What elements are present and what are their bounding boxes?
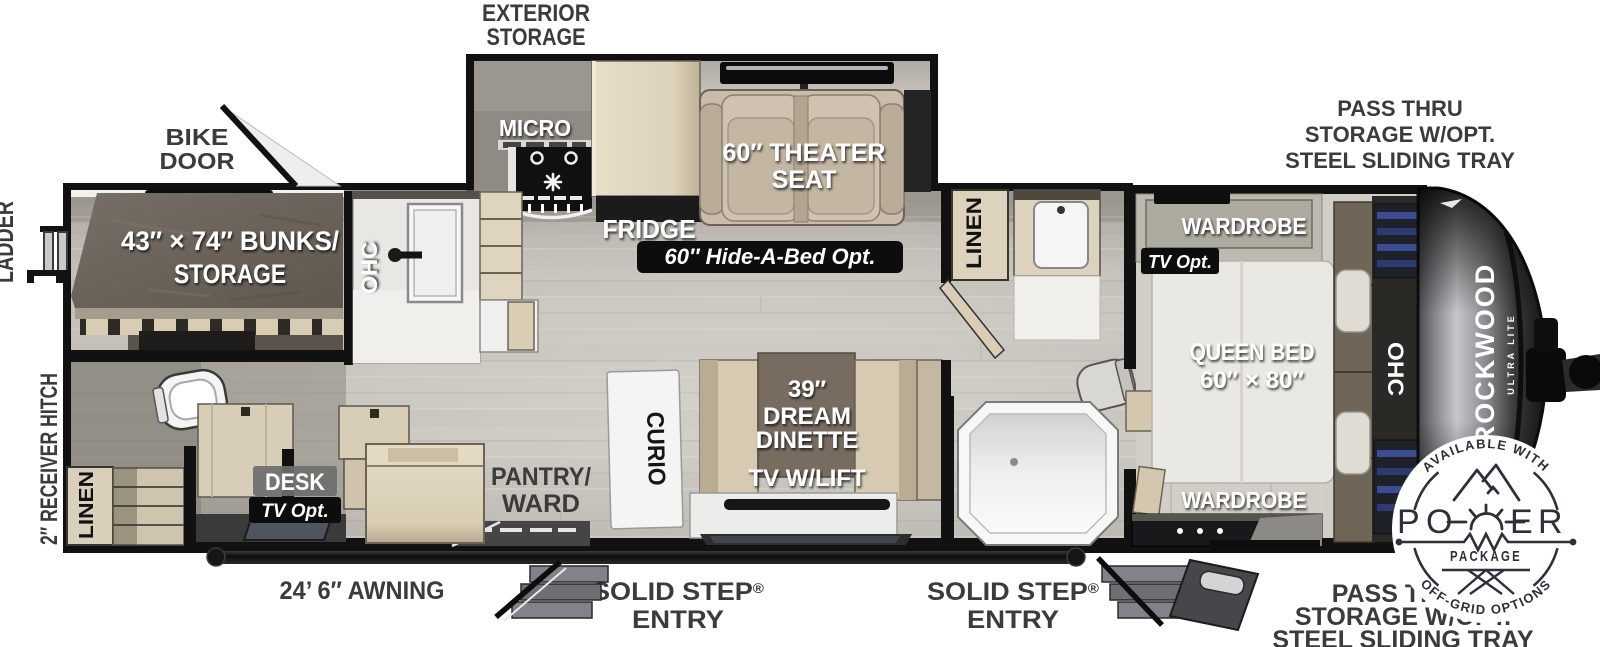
svg-text:SOLID STEP®: SOLID STEP® xyxy=(592,578,765,606)
svg-text:DINETTE: DINETTE xyxy=(756,427,859,454)
svg-text:60″ Hide-A-Bed Opt.: 60″ Hide-A-Bed Opt. xyxy=(665,244,876,269)
svg-text:ENTRY: ENTRY xyxy=(632,606,724,634)
svg-text:24’ 6″ AWNING: 24’ 6″ AWNING xyxy=(280,577,445,605)
svg-text:FRIDGE: FRIDGE xyxy=(603,214,696,244)
svg-text:ENTRY: ENTRY xyxy=(967,606,1059,634)
svg-text:OHC: OHC xyxy=(1383,342,1408,396)
svg-text:WARDROBE: WARDROBE xyxy=(1182,487,1307,513)
svg-text:43″ × 74″ BUNKS/: 43″ × 74″ BUNKS/ xyxy=(121,226,339,256)
svg-text:TV Opt.: TV Opt. xyxy=(261,501,329,522)
svg-text:MICRO: MICRO xyxy=(499,115,571,141)
svg-text:P: P xyxy=(1397,503,1420,541)
svg-text:EXTERIOR: EXTERIOR xyxy=(482,0,590,27)
svg-text:STORAGE W/OPT.: STORAGE W/OPT. xyxy=(1305,122,1495,147)
svg-text:STEEL SLIDING TRAY: STEEL SLIDING TRAY xyxy=(1285,148,1515,173)
svg-text:LINEN: LINEN xyxy=(963,197,986,269)
svg-text:LADDER: LADDER xyxy=(0,201,19,283)
svg-text:SEAT: SEAT xyxy=(772,166,837,194)
svg-text:STORAGE: STORAGE xyxy=(174,259,286,289)
svg-text:60″ × 80″: 60″ × 80″ xyxy=(1200,367,1305,394)
svg-text:ULTRA LITE: ULTRA LITE xyxy=(1506,313,1516,395)
svg-text:SOLID STEP®: SOLID STEP® xyxy=(927,578,1100,606)
svg-text:ROCKWOOD: ROCKWOOD xyxy=(1470,263,1500,445)
svg-text:STORAGE: STORAGE xyxy=(487,24,586,51)
svg-text:QUEEN BED: QUEEN BED xyxy=(1190,339,1315,366)
svg-text:PACKAGE: PACKAGE xyxy=(1450,548,1522,565)
svg-text:STEEL SLIDING TRAY: STEEL SLIDING TRAY xyxy=(1272,626,1533,647)
svg-text:PANTRY/: PANTRY/ xyxy=(491,463,591,491)
svg-text:PASS THRU: PASS THRU xyxy=(1337,96,1463,121)
svg-text:60″ THEATER: 60″ THEATER xyxy=(723,139,886,167)
svg-text:CURIO: CURIO xyxy=(641,411,670,486)
svg-text:DESK: DESK xyxy=(265,469,326,496)
svg-text:OHC: OHC xyxy=(357,242,382,294)
svg-text:2″ RECEIVER HITCH: 2″ RECEIVER HITCH xyxy=(36,373,63,545)
svg-text:TV W/LIFT: TV W/LIFT xyxy=(748,465,866,492)
svg-text:LINEN: LINEN xyxy=(76,471,98,539)
svg-text:WARD: WARD xyxy=(502,490,580,518)
svg-text:WARDROBE: WARDROBE xyxy=(1182,213,1307,239)
svg-text:R: R xyxy=(1538,503,1563,541)
svg-text:39″: 39″ xyxy=(788,376,827,403)
svg-text:BIKE: BIKE xyxy=(166,124,229,150)
svg-text:DREAM: DREAM xyxy=(763,403,851,430)
svg-text:DOOR: DOOR xyxy=(160,148,235,174)
svg-text:TV Opt.: TV Opt. xyxy=(1148,252,1212,272)
